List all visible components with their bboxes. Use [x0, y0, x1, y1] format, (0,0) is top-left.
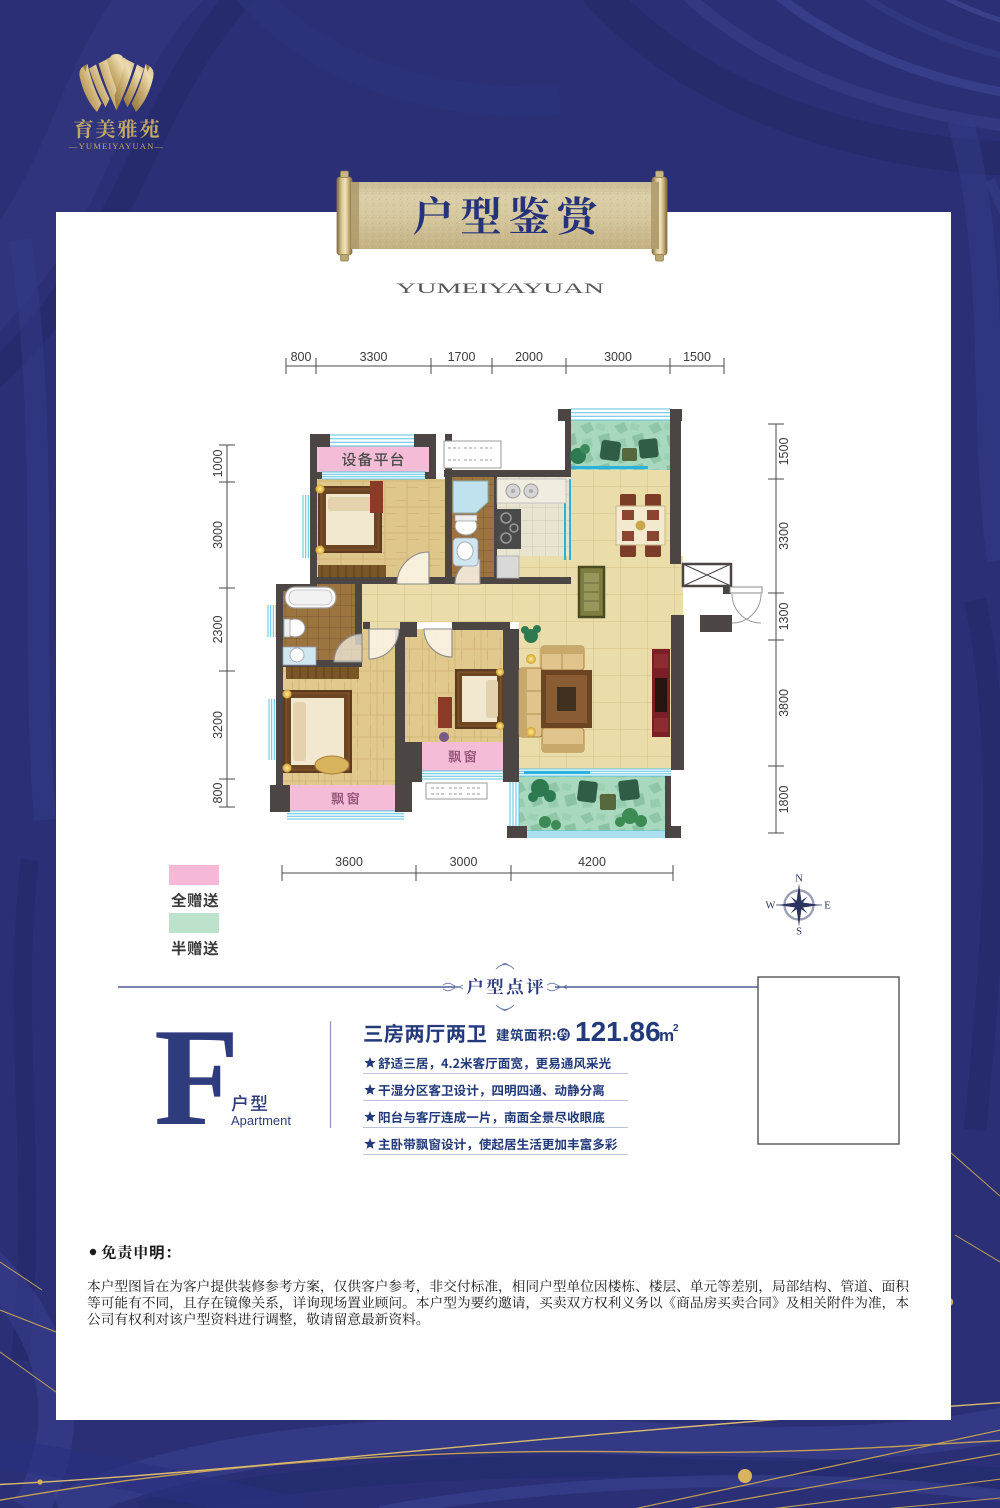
svg-text:S: S — [796, 927, 802, 938]
svg-text:E: E — [824, 901, 830, 912]
svg-text:1300: 1300 — [777, 603, 791, 631]
svg-text:3300: 3300 — [777, 522, 791, 550]
svg-text:2000: 2000 — [515, 350, 543, 364]
svg-text:3800: 3800 — [777, 689, 791, 717]
svg-text:2: 2 — [673, 1023, 679, 1034]
svg-text:4200: 4200 — [578, 855, 606, 869]
svg-text:F: F — [154, 1000, 240, 1155]
svg-text:3600: 3600 — [335, 855, 363, 869]
svg-text:3000: 3000 — [604, 350, 632, 364]
svg-text:1500: 1500 — [683, 350, 711, 364]
svg-text:121.86: 121.86 — [575, 1016, 661, 1047]
svg-text:1800: 1800 — [777, 786, 791, 814]
svg-text:800: 800 — [211, 783, 225, 804]
svg-text:2300: 2300 — [211, 616, 225, 644]
svg-text:3200: 3200 — [211, 711, 225, 739]
svg-text:YUMEIYAYUAN: YUMEIYAYUAN — [396, 281, 605, 297]
svg-text:800: 800 — [291, 350, 312, 364]
svg-text:1500: 1500 — [777, 438, 791, 466]
svg-text:—YUMEIYAYUAN—: —YUMEIYAYUAN— — [68, 141, 164, 151]
svg-text:m: m — [659, 1026, 674, 1045]
svg-text:3300: 3300 — [360, 350, 388, 364]
svg-text:3000: 3000 — [450, 855, 478, 869]
svg-text:1000: 1000 — [211, 450, 225, 478]
svg-text:3000: 3000 — [211, 521, 225, 549]
svg-text:Apartment: Apartment — [231, 1113, 291, 1128]
svg-text:1700: 1700 — [448, 350, 476, 364]
svg-text:N: N — [795, 874, 803, 885]
svg-text:W: W — [766, 901, 776, 912]
